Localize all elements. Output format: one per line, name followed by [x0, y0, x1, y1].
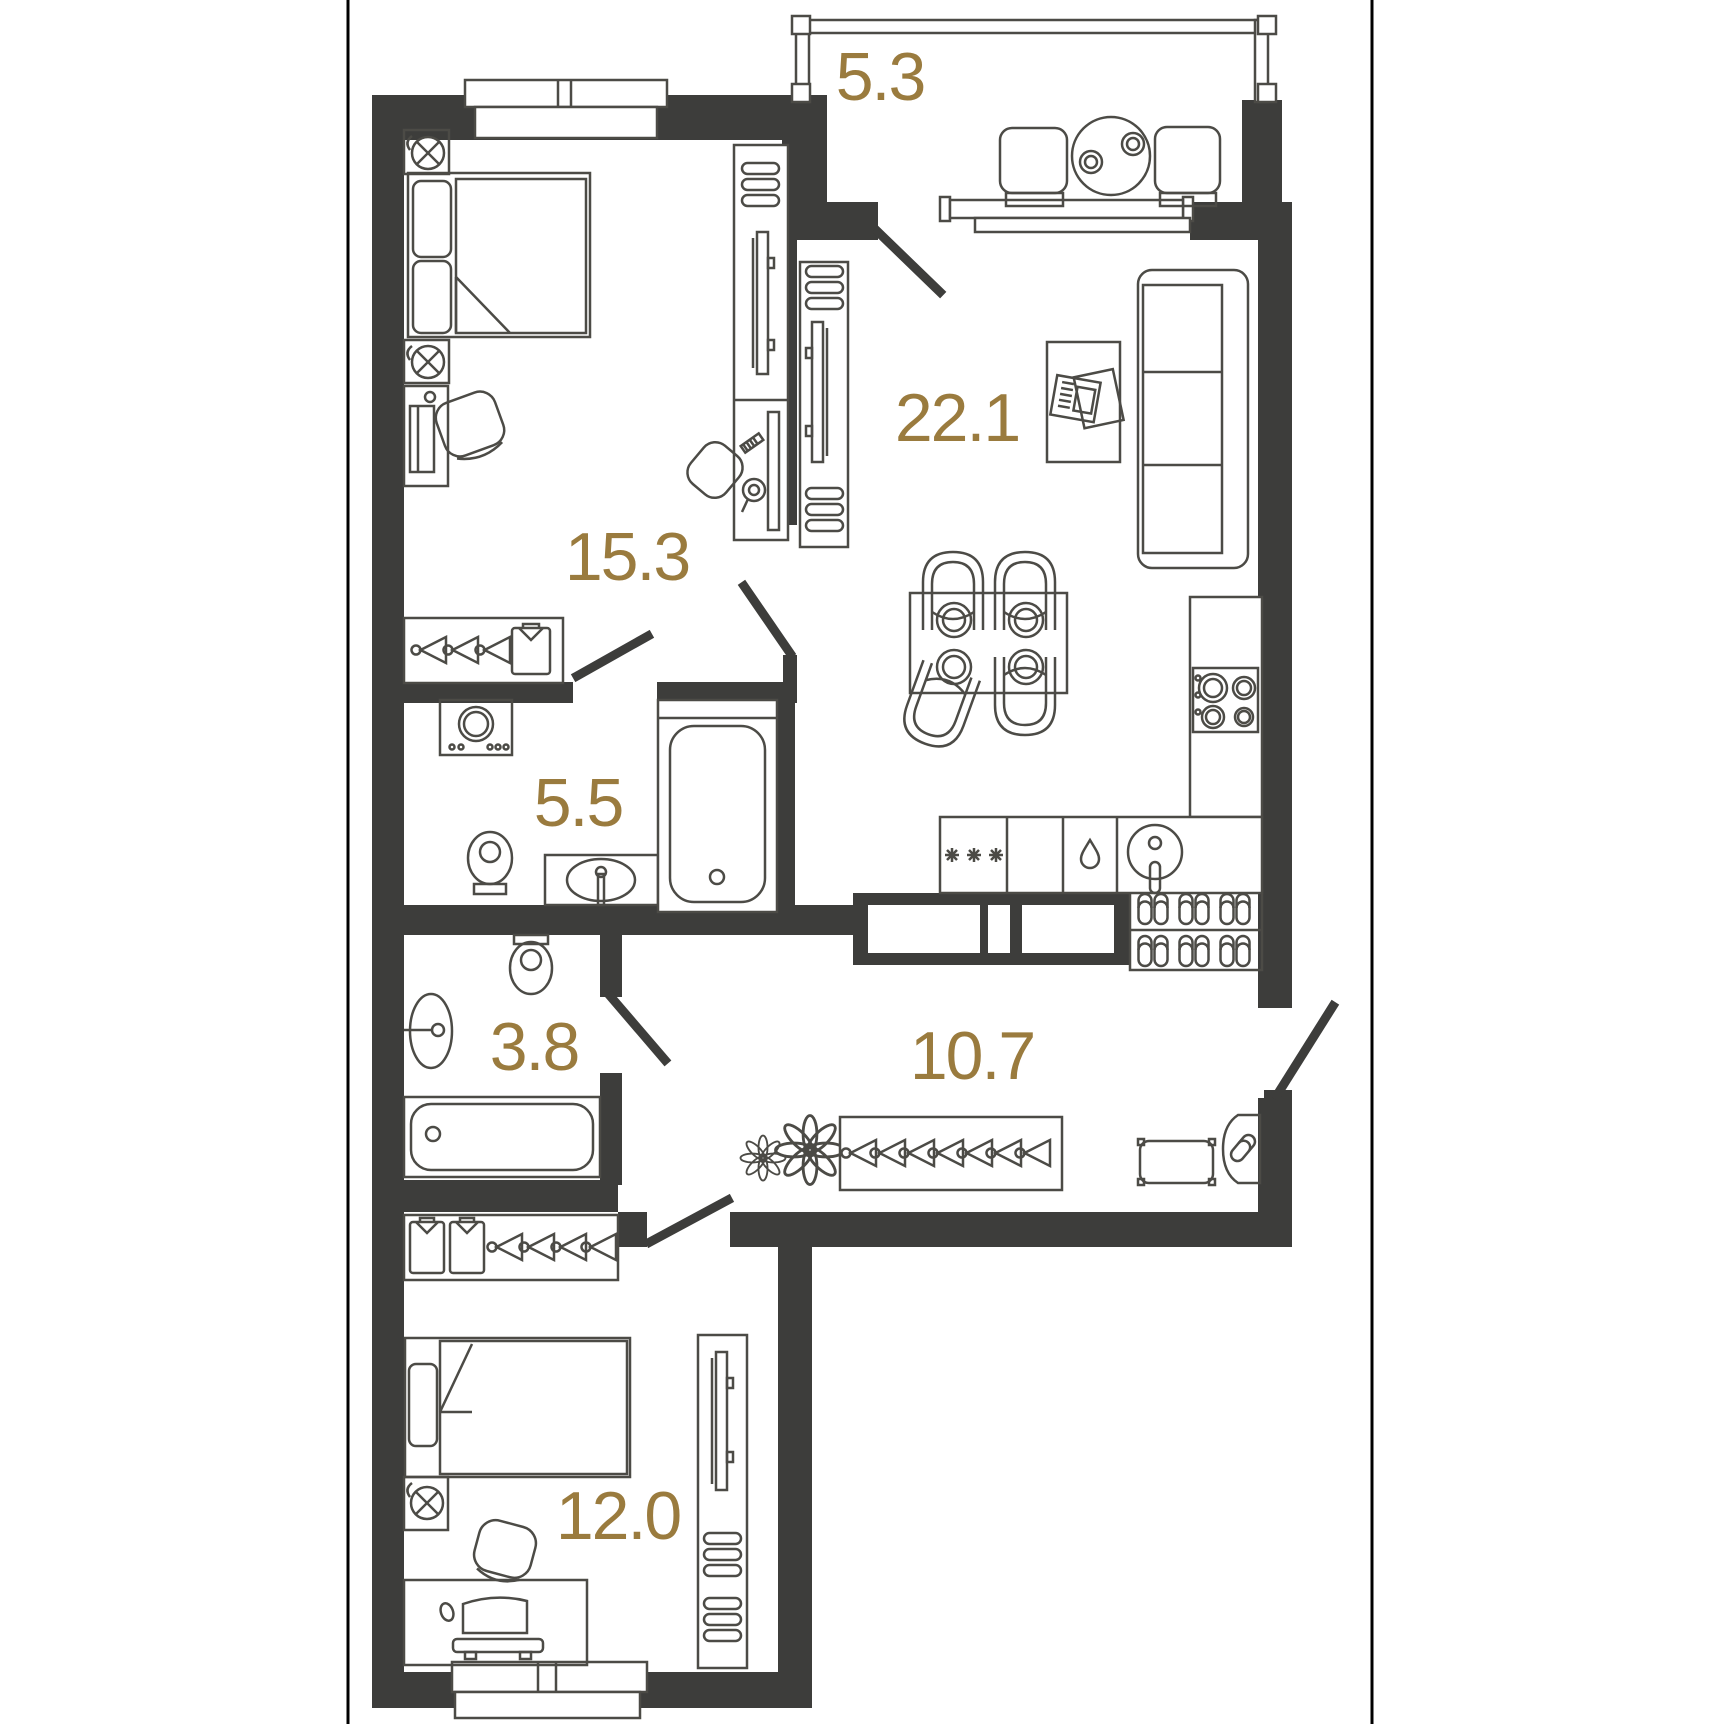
wardrobe-icon — [404, 1215, 618, 1280]
toilet-icon — [510, 935, 552, 994]
bedroom-window-icon — [465, 80, 667, 138]
room-label-bedroom: 15.3 — [565, 523, 689, 591]
hall-cabinet-icon — [853, 893, 1130, 965]
desk-icon — [404, 1580, 587, 1665]
table-icon — [1072, 117, 1150, 195]
floor-plan-drawing — [0, 0, 1724, 1724]
plant-icon — [741, 1136, 786, 1181]
room-label-bathroom: 5.5 — [534, 769, 623, 837]
washing-machine-icon — [440, 700, 512, 755]
tv-unit-icon — [800, 262, 848, 547]
bathtub-icon — [404, 1097, 600, 1177]
single-bed-icon — [405, 1338, 630, 1477]
bathroom-door-icon — [577, 636, 648, 676]
room-label-hallway: 10.7 — [910, 1022, 1034, 1090]
plant-icon — [776, 1116, 845, 1185]
bedroom2-furniture — [404, 1215, 747, 1668]
bedroom-furniture — [404, 130, 788, 683]
sink-icon — [404, 994, 452, 1068]
dining-table-icon — [897, 552, 1067, 754]
hallway-furniture — [741, 1115, 1261, 1190]
room-label-toilet: 3.8 — [490, 1013, 579, 1081]
room-label-bedroom-2: 12.0 — [556, 1482, 680, 1550]
chair-icon — [1155, 127, 1220, 206]
double-bed-icon — [408, 173, 590, 337]
sofa-icon — [1138, 270, 1248, 568]
bedroom2-door-icon — [650, 1200, 728, 1242]
tv-unit-icon — [734, 145, 788, 540]
toilet-door-icon — [611, 997, 665, 1060]
living-window-icon — [940, 197, 1193, 232]
kitchen-counter-icon — [940, 597, 1262, 893]
living-furniture — [800, 262, 1262, 893]
coat-rack-icon — [840, 1117, 1062, 1190]
sink-icon — [545, 855, 658, 905]
loggia-door-icon — [878, 232, 940, 292]
floor-plan: 5.3 15.3 22.1 5.5 3.8 10.7 12.0 — [0, 0, 1724, 1724]
nightstand-icon — [404, 340, 449, 383]
room-label-living-kitchen: 22.1 — [895, 384, 1019, 452]
room-label-loggia: 5.3 — [836, 43, 925, 111]
shoe-stand-icon — [1223, 1115, 1260, 1183]
toilet-icon — [468, 832, 512, 894]
chair-icon — [1000, 128, 1067, 206]
chair-icon — [469, 1516, 540, 1587]
tv-unit-icon — [698, 1335, 747, 1668]
entrance-door-icon — [1277, 1006, 1333, 1095]
loggia-furniture — [1000, 117, 1220, 206]
shoe-rack-icon — [1130, 890, 1262, 970]
nightstand-icon — [404, 1477, 448, 1530]
coffee-table-icon — [1047, 342, 1124, 462]
chair-icon — [431, 387, 510, 466]
wardrobe-icon — [404, 618, 563, 683]
pouf-icon — [1138, 1139, 1215, 1185]
bathtub-icon — [658, 700, 777, 912]
bedroom-door-icon — [744, 586, 790, 653]
bedroom2-window-icon — [452, 1662, 647, 1718]
